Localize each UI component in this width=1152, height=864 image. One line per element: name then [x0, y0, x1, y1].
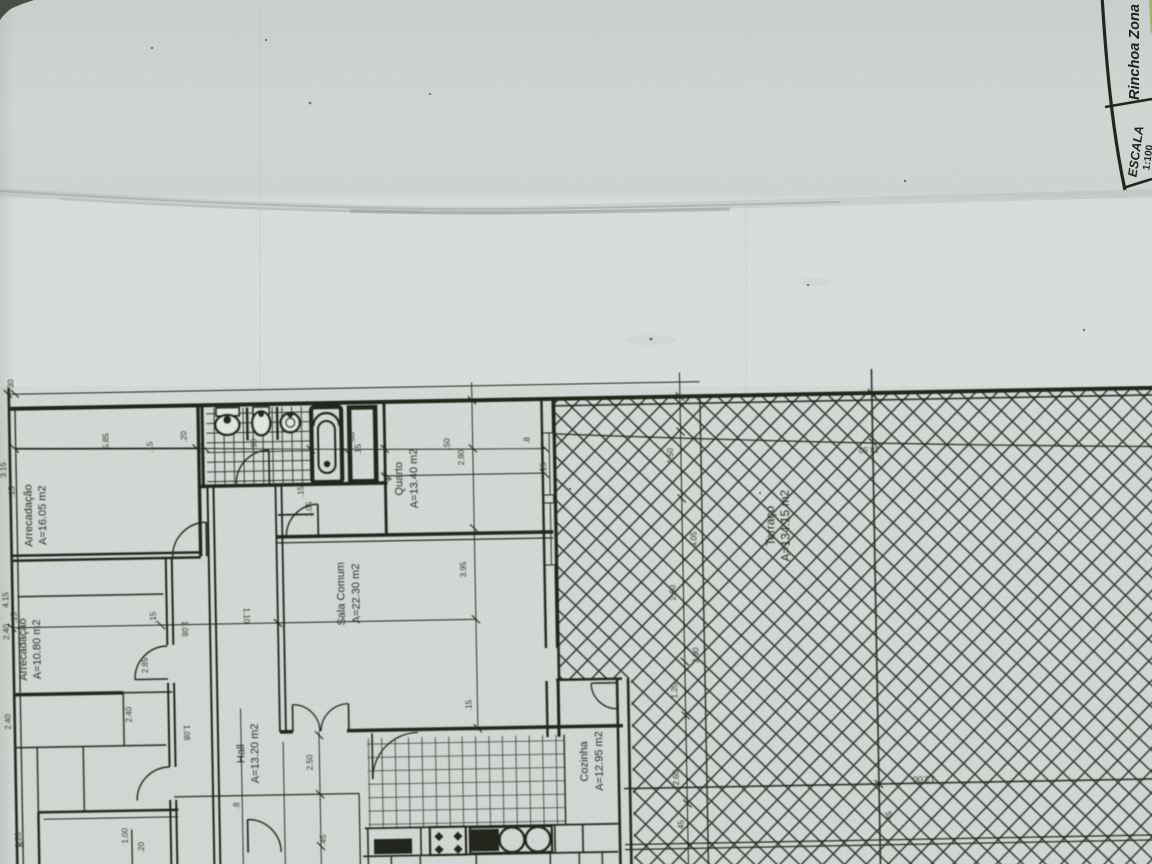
svg-text:5.85: 5.85	[101, 433, 110, 449]
svg-text:2.85: 2.85	[141, 657, 150, 673]
svg-text:.15: .15	[354, 443, 363, 455]
svg-text:14.50: 14.50	[858, 445, 879, 454]
svg-text:.15: .15	[296, 485, 305, 497]
svg-text:Sala Comum: Sala Comum	[335, 562, 348, 626]
svg-text:Rinchoa Zona: Rinchoa Zona	[1127, 4, 1143, 100]
svg-text:2.80: 2.80	[457, 449, 466, 465]
svg-text:.8: .8	[523, 436, 532, 443]
svg-text:.15: .15	[149, 611, 158, 623]
svg-text:2.40: 2.40	[2, 624, 11, 640]
svg-text:1.08: 1.08	[180, 621, 189, 637]
svg-text:2.60: 2.60	[672, 769, 681, 785]
svg-text:2.50: 2.50	[305, 754, 314, 770]
svg-text:.15: .15	[539, 462, 548, 474]
svg-text:3.15: 3.15	[0, 462, 8, 478]
svg-text:1.00: 1.00	[121, 827, 130, 843]
svg-text:A=16.05 m2: A=16.05 m2	[36, 485, 49, 545]
svg-text:.90: .90	[250, 438, 259, 450]
svg-text:A=13.20 m2: A=13.20 m2	[249, 723, 262, 783]
svg-text:.15: .15	[146, 441, 155, 453]
svg-text:A=22.30 m2: A=22.30 m2	[350, 564, 363, 624]
svg-text:1.10: 1.10	[242, 608, 251, 624]
svg-text:.20: .20	[179, 430, 188, 442]
svg-text:.45: .45	[677, 819, 686, 831]
svg-text:2.40: 2.40	[4, 713, 13, 729]
svg-text:1.08: 1.08	[182, 725, 191, 741]
svg-text:.60: .60	[347, 431, 356, 443]
svg-text:.8: .8	[232, 802, 241, 809]
svg-text:A=12.95 m2: A=12.95 m2	[593, 731, 606, 791]
svg-text:A=10.80 m2: A=10.80 m2	[31, 619, 44, 679]
svg-text:4.15: 4.15	[1, 592, 10, 608]
svg-text:Arrecadação: Arrecadação	[17, 618, 30, 681]
svg-text:A=13.40 m2: A=13.40 m2	[408, 449, 421, 509]
svg-text:.15: .15	[7, 486, 16, 498]
svg-text:Hall: Hall	[235, 744, 247, 763]
svg-text:2.40: 2.40	[124, 706, 133, 722]
svg-text:.45: .45	[884, 811, 893, 823]
svg-text:30: 30	[6, 379, 15, 389]
svg-text:8: 8	[16, 842, 26, 847]
svg-text:.15: .15	[10, 612, 19, 624]
svg-text:.20: .20	[137, 841, 146, 853]
svg-text:Terraço: Terraço	[763, 505, 778, 546]
svg-text:Arrecadação: Arrecadação	[22, 484, 35, 547]
svg-text:.50: .50	[443, 438, 452, 450]
svg-text:Quarto: Quarto	[393, 462, 406, 496]
svg-text:1.05: 1.05	[305, 501, 314, 517]
svg-text:2.60: 2.60	[668, 584, 677, 600]
svg-text:1.50: 1.50	[666, 447, 675, 463]
svg-text:Cozinha: Cozinha	[578, 740, 591, 781]
svg-text:1.20: 1.20	[670, 682, 679, 698]
svg-text:A=134.15 m2: A=134.15 m2	[778, 489, 793, 561]
svg-text:.45: .45	[319, 834, 328, 846]
svg-text:2.90: 2.90	[691, 647, 700, 663]
svg-text:4.05: 4.05	[689, 531, 698, 547]
svg-text:.15: .15	[464, 699, 473, 711]
svg-text:3.95: 3.95	[459, 561, 468, 577]
svg-text:13.00: 13.00	[913, 774, 936, 784]
